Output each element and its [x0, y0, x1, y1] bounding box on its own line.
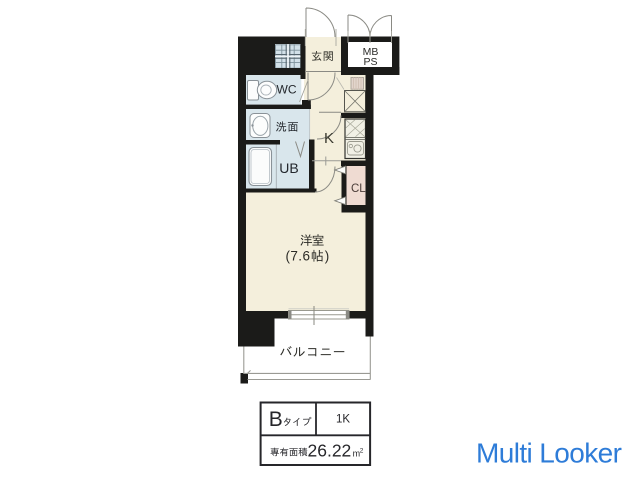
svg-text:): )	[325, 249, 330, 264]
svg-text:1K: 1K	[336, 414, 350, 426]
svg-text:UB: UB	[279, 160, 298, 176]
svg-text:2: 2	[360, 447, 364, 454]
svg-text:(7.6: (7.6	[286, 249, 311, 264]
svg-text:WC: WC	[277, 83, 297, 97]
svg-text:K: K	[324, 130, 334, 147]
svg-text:26.22: 26.22	[308, 441, 352, 461]
svg-text:B: B	[269, 408, 283, 431]
svg-text:Multi Looker: Multi Looker	[476, 438, 622, 469]
svg-text:PS: PS	[363, 56, 377, 68]
svg-text:CL: CL	[351, 183, 366, 195]
